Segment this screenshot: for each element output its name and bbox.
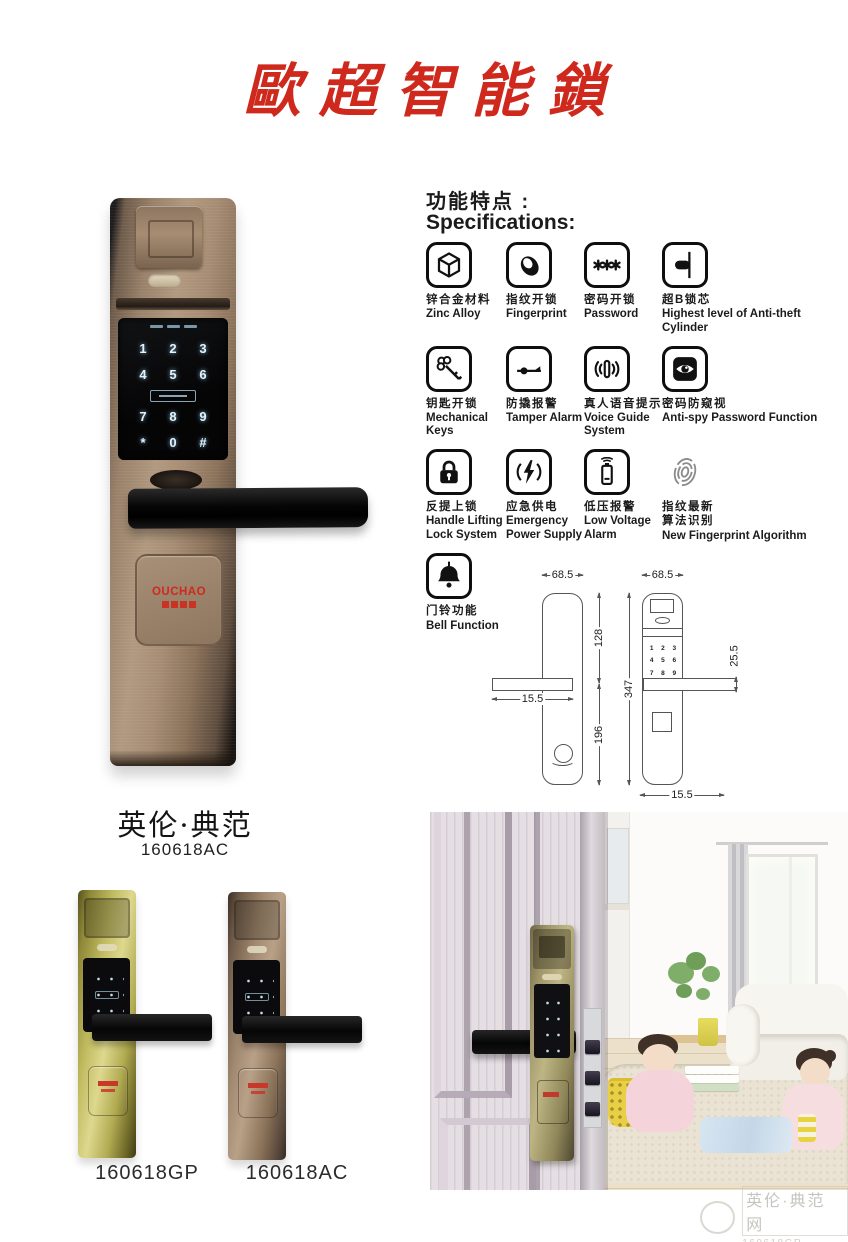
key-4: 4 [139, 364, 146, 386]
indicator-window [97, 944, 117, 951]
door-panel [440, 1118, 536, 1190]
child-figure [626, 1070, 694, 1132]
key-5: 5 [169, 364, 176, 386]
back-handle-drawing [492, 678, 573, 691]
brand-plate [238, 1068, 278, 1118]
key-star: * [140, 432, 145, 454]
door-gap-shadow [605, 812, 608, 1190]
brand-seal [137, 601, 221, 608]
striped-hat [798, 1114, 816, 1142]
battery-icon [584, 449, 630, 495]
fingerprint-drawing [650, 599, 674, 613]
door-edge [580, 812, 605, 1190]
voice-guide-icon [584, 346, 630, 392]
fingerprint-cover [234, 900, 280, 940]
indicator-window [247, 946, 267, 953]
spec-item-anti-spy: 密码防窥视Anti-spy Password Function [662, 346, 818, 440]
spec-item-tamper-alarm: 防撬报警Tamper Alarm [506, 346, 584, 440]
variant-label-ac: 160618AC [212, 1162, 382, 1185]
key-8: 8 [169, 406, 176, 428]
main-product-photo: 1 2 3 4 5 6 7 8 9 * 0 # OUCHAO [108, 198, 376, 778]
product-photo-160618ac [228, 888, 378, 1164]
tamper-alarm-icon [506, 346, 552, 392]
hallway-window [607, 828, 629, 904]
key-9: 9 [199, 406, 206, 428]
fingerprint-cover [84, 898, 130, 938]
padlock-icon [426, 449, 472, 495]
installed-lock-indicator [542, 974, 562, 980]
dim-front-height: 347 [624, 593, 635, 785]
spec-item-new-fingerprint: 指纹最新 算法识别New Fingerprint Algorithm [662, 449, 818, 543]
spec-item-emergency-power: 应急供电Emergency Power Supply [506, 449, 584, 543]
brand-plate [88, 1066, 128, 1116]
blue-laundry [700, 1117, 792, 1153]
key-6: 6 [199, 364, 206, 386]
dim-front-handle-label: 25.5 [729, 645, 741, 666]
dimension-drawings: 68.5 128 196 15.5 68.5 347 123 456 789 *… [478, 568, 788, 824]
dim-back-width: 68.5 [542, 570, 583, 581]
card-slot [245, 993, 269, 1001]
plant-leaf [686, 952, 706, 970]
brand-logo: OUCHAO [137, 586, 221, 598]
series-name: 英伦·典范 [85, 802, 285, 844]
page-title: 歐超智能鎖 [0, 44, 848, 128]
key-hash: # [199, 432, 206, 454]
site-watermark: 英伦·典范 网 160618GP [700, 1186, 848, 1242]
lifestyle-photo [430, 812, 848, 1190]
key-2: 2 [169, 338, 176, 360]
key-0: 0 [169, 432, 176, 454]
touch-keypad: 1 2 3 4 5 6 7 8 9 * 0 # [118, 318, 228, 460]
spec-item-handle-lifting: 反提上锁Handle Lifting Lock System [426, 449, 506, 543]
cylinder-icon [662, 242, 708, 288]
dim-front-handle-arrows [731, 677, 742, 692]
installed-lock-keypad [534, 984, 570, 1058]
product-photo-160618gp [78, 886, 228, 1162]
fingerprint-cover [136, 206, 202, 268]
watermark-logo-circle [700, 1201, 735, 1234]
brochure-page: 歐超智能鎖 1 2 3 4 5 6 7 8 9 * [0, 0, 848, 1242]
knob-arc [550, 755, 575, 766]
lock-bolt [585, 1102, 600, 1116]
brand-plate: OUCHAO [135, 554, 223, 646]
lock-bolt [585, 1040, 600, 1054]
key-1: 1 [139, 338, 146, 360]
spec-item-low-voltage: 低压报警Low Voltage Alarm [584, 449, 662, 543]
divider-line [642, 628, 683, 629]
installed-lock-logo-mark [543, 1092, 559, 1097]
fingerprint-icon [506, 242, 552, 288]
lock-bolt [585, 1071, 600, 1085]
watermark-line1: 英伦·典范 网 [742, 1186, 848, 1236]
divider-line [642, 636, 683, 637]
door-handle [242, 1016, 362, 1043]
indicator-window [148, 274, 181, 287]
installed-lock-brand-plate [537, 1080, 569, 1124]
card-slot [150, 390, 196, 402]
bell-icon [426, 553, 472, 599]
cube-icon [426, 242, 472, 288]
door-panel [434, 812, 512, 1098]
door-handle [92, 1014, 212, 1041]
watermark-line2: 160618GP [742, 1238, 848, 1242]
plant-leaf [676, 984, 692, 998]
spec-item-password: 密码开锁Password [584, 242, 662, 336]
dim-front-bottom: 15.5 [640, 790, 724, 801]
sofa-armrest [726, 1004, 760, 1066]
key-7: 7 [139, 406, 146, 428]
card-slot [95, 991, 119, 999]
lightning-icon [506, 449, 552, 495]
hallway-shelf [605, 904, 629, 910]
series-model: 160618AC [85, 840, 285, 860]
installed-lock-window [539, 936, 565, 958]
child-hair-bun [824, 1050, 836, 1062]
variant-label-gp: 160618GP [62, 1162, 232, 1185]
spec-item-mechanical-keys: 钥匙开锁Mechanical Keys [426, 346, 506, 440]
plant-leaf [696, 988, 710, 1000]
key-icon [426, 346, 472, 392]
key-3: 3 [199, 338, 206, 360]
anti-spy-eye-icon [662, 346, 708, 392]
dim-back-lower: 196 [594, 684, 605, 785]
spec-item-cylinder: 超B锁芯Highest level of Anti-theft Cylinder [662, 242, 818, 336]
specs-heading-cn: 功能特点 : [426, 185, 530, 214]
keypad-keys: 1 2 3 4 5 6 7 8 9 * 0 # [128, 336, 218, 456]
spec-item-fingerprint: 指纹开锁Fingerprint [506, 242, 584, 336]
dim-front-width: 68.5 [642, 570, 683, 581]
specs-heading-en: Specifications: [426, 211, 575, 235]
indicator-drawing [655, 617, 670, 624]
front-handle-drawing [643, 678, 737, 691]
handle-mount [150, 470, 202, 490]
spec-item-voice-guide: 真人语音提示Voice Guide System [584, 346, 662, 440]
dim-back-upper: 128 [594, 593, 605, 683]
card-reader-drawing [652, 712, 672, 732]
password-icon [584, 242, 630, 288]
status-display [118, 325, 228, 328]
cover-groove [116, 298, 230, 310]
spec-item-zinc-alloy: 锌合金材料Zinc Alloy [426, 242, 506, 336]
plant-pot [698, 1018, 718, 1046]
dim-back-handle: 15.5 [492, 694, 573, 705]
plant-leaf [702, 966, 720, 982]
door-handle [128, 487, 368, 529]
child-head [800, 1058, 830, 1086]
new-fingerprint-icon [662, 449, 708, 495]
